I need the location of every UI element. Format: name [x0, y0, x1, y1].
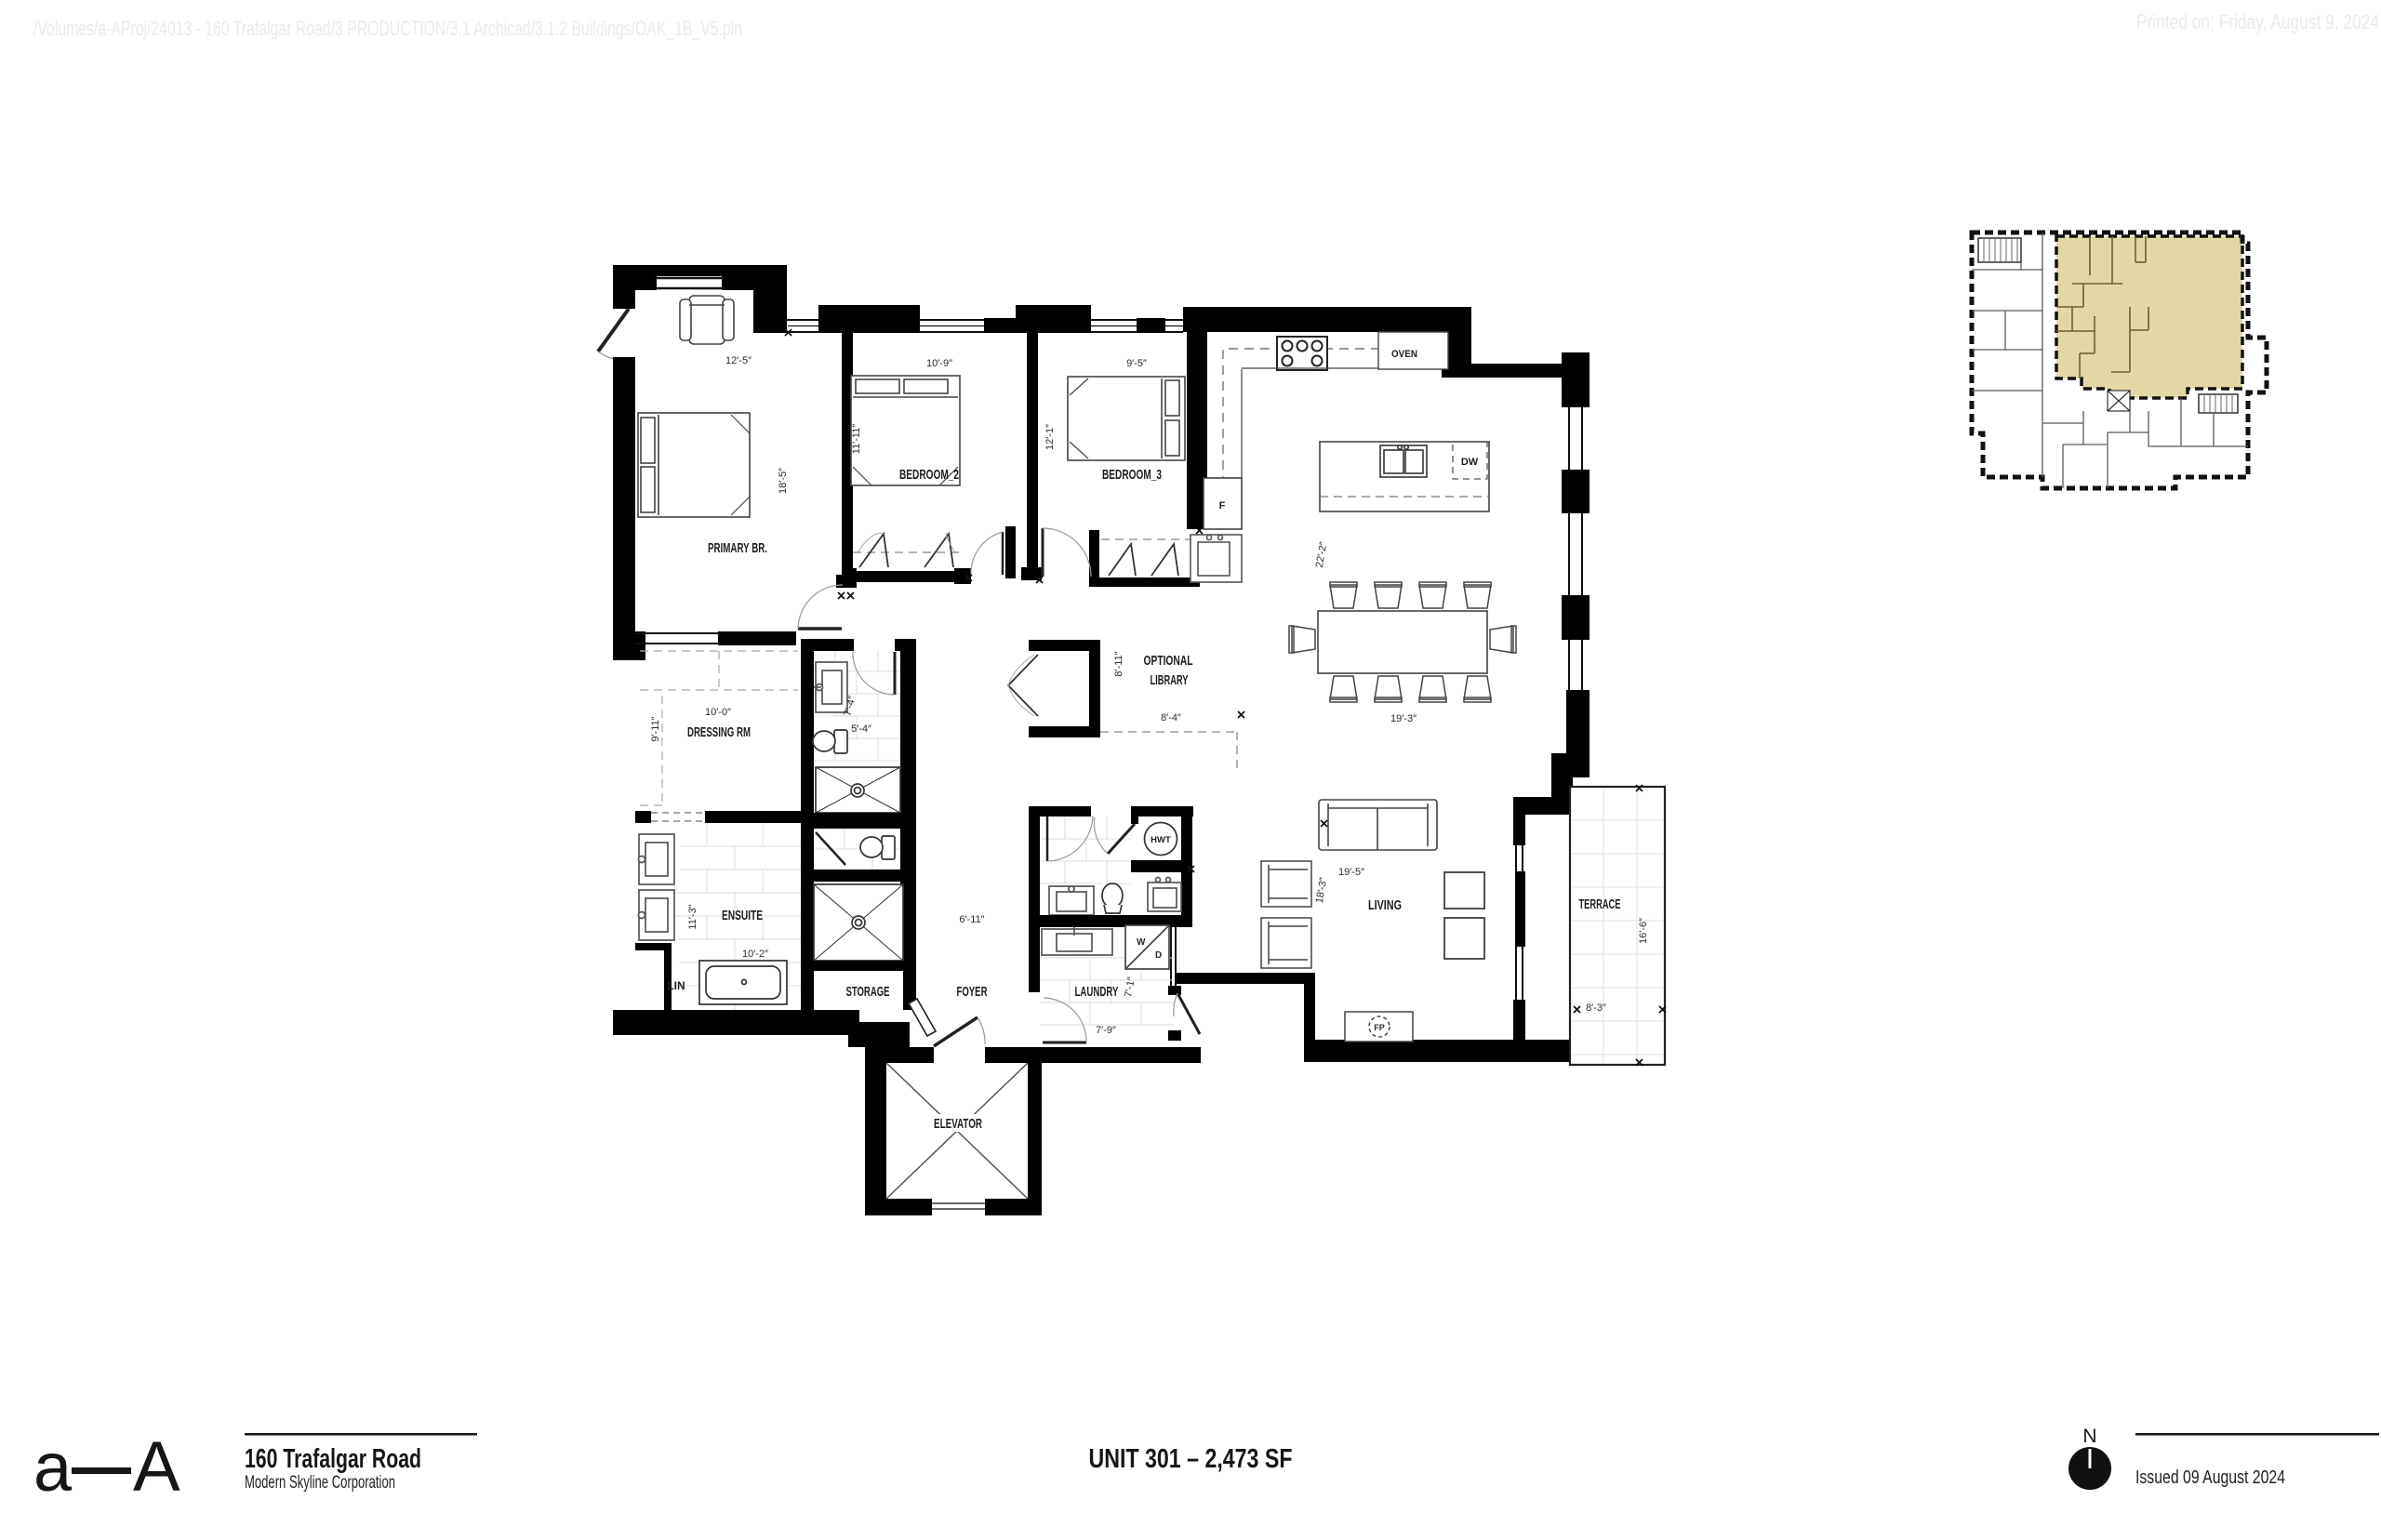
svg-text:HWT: HWT: [1151, 835, 1171, 845]
svg-text:9′-11″: 9′-11″: [650, 716, 661, 741]
svg-text:11′-3″: 11′-3″: [687, 904, 698, 929]
svg-text:9′-5″: 9′-5″: [1126, 358, 1147, 369]
svg-text:10′-2″: 10′-2″: [742, 949, 768, 960]
svg-text:18′-5″: 18′-5″: [778, 468, 789, 494]
svg-text:W: W: [1137, 937, 1146, 948]
svg-text:19′-5″: 19′-5″: [1338, 867, 1364, 878]
svg-text:DRESSING RM: DRESSING RM: [687, 724, 751, 740]
svg-text:16′-6″: 16′-6″: [1638, 918, 1649, 944]
svg-text:DW: DW: [1461, 457, 1479, 468]
svg-text:BEDROOM_3: BEDROOM_3: [1102, 467, 1162, 483]
svg-text:BEDROOM_2: BEDROOM_2: [899, 467, 959, 483]
svg-text:LIBRARY: LIBRARY: [1151, 672, 1189, 688]
svg-text:/Volumes/a-AProj/24013 - 160 T: /Volumes/a-AProj/24013 - 160 Trafalgar R…: [33, 17, 742, 40]
svg-text:LAUNDRY: LAUNDRY: [1075, 984, 1119, 1000]
svg-text:160 Trafalgar Road: 160 Trafalgar Road: [245, 1444, 421, 1474]
svg-text:A: A: [133, 1427, 180, 1507]
svg-text:12′-5″: 12′-5″: [725, 355, 752, 366]
svg-text:6′-11″: 6′-11″: [959, 914, 984, 925]
svg-text:8′-3″: 8′-3″: [1586, 1002, 1606, 1014]
svg-text:TERRACE: TERRACE: [1579, 896, 1621, 912]
svg-text:FP: FP: [1374, 1023, 1385, 1032]
svg-text:PRIMARY BR.: PRIMARY BR.: [708, 540, 767, 556]
svg-text:FOYER: FOYER: [957, 984, 988, 1000]
svg-text:8′-4″: 8′-4″: [1161, 712, 1181, 724]
svg-text:Modern Skyline Corporation: Modern Skyline Corporation: [245, 1473, 395, 1493]
svg-text:19′-3″: 19′-3″: [1390, 713, 1417, 724]
svg-text:UNIT 301 – 2,473 SF: UNIT 301 – 2,473 SF: [1089, 1444, 1293, 1474]
svg-text:Printed on: Friday, August 9,: Printed on: Friday, August 9, 2024: [2136, 10, 2379, 33]
svg-text:Issued 09 August 2024: Issued 09 August 2024: [2135, 1467, 2285, 1488]
svg-text:8′-11″: 8′-11″: [1113, 651, 1124, 676]
svg-text:OVEN: OVEN: [1391, 349, 1417, 360]
svg-text:N: N: [2082, 1426, 2096, 1447]
svg-text:ENSUITE: ENSUITE: [722, 908, 763, 923]
svg-text:F: F: [1219, 500, 1226, 511]
svg-text:LIVING: LIVING: [1368, 897, 1402, 913]
svg-text:a: a: [33, 1428, 73, 1506]
svg-text:ELEVATOR: ELEVATOR: [934, 1116, 982, 1132]
svg-text:D: D: [1155, 950, 1162, 961]
svg-text:10′-0″: 10′-0″: [705, 707, 731, 718]
svg-text:STORAGE: STORAGE: [846, 984, 890, 1000]
svg-text:7′-9″: 7′-9″: [1096, 1025, 1116, 1036]
svg-text:5′-4″: 5′-4″: [851, 724, 871, 735]
svg-text:11′-11″: 11′-11″: [851, 424, 862, 455]
svg-text:OPTIONAL: OPTIONAL: [1144, 653, 1193, 669]
svg-text:12′-1″: 12′-1″: [1044, 424, 1056, 450]
svg-text:LIN: LIN: [667, 979, 685, 992]
svg-text:10′-9″: 10′-9″: [926, 358, 952, 369]
